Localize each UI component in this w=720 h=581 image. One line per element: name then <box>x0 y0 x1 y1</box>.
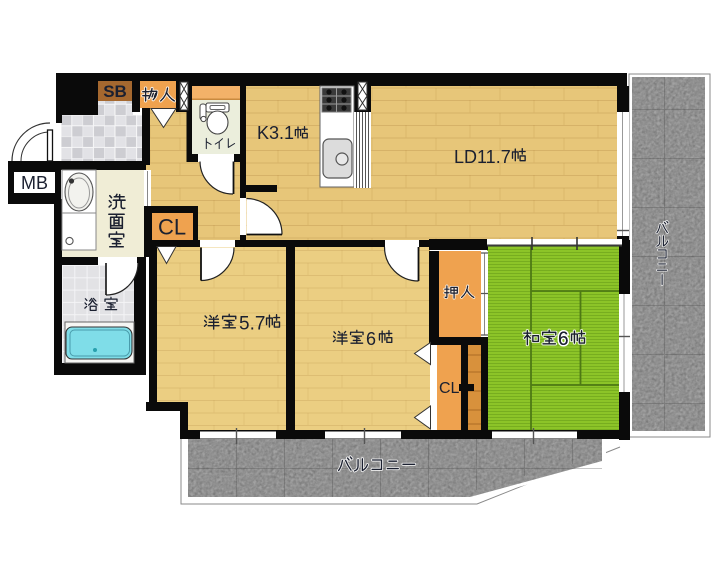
svg-text:SB: SB <box>103 82 127 101</box>
svg-text:LD11.7: LD11.7 <box>454 147 511 167</box>
svg-text:6: 6 <box>366 329 376 349</box>
svg-text:MB: MB <box>21 173 48 193</box>
svg-text:K3.1: K3.1 <box>257 123 294 143</box>
svg-text:6: 6 <box>558 329 569 350</box>
svg-text:5.7: 5.7 <box>239 314 265 335</box>
svg-text:CL: CL <box>439 380 460 397</box>
svg-text:CL: CL <box>158 215 186 240</box>
